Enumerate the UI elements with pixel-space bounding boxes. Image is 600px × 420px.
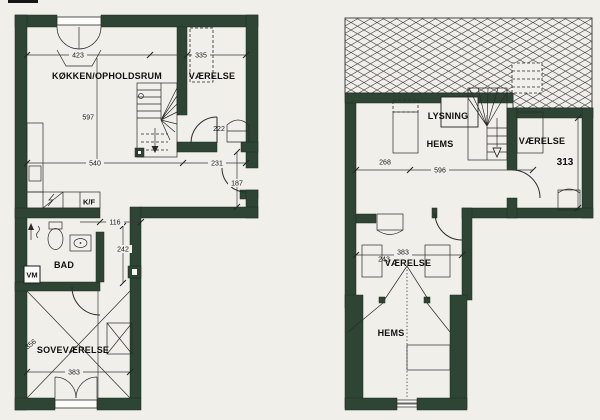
electrical-box <box>135 148 144 157</box>
staircase-ground <box>137 83 177 157</box>
room-label-lysning: LYSNING <box>428 111 469 121</box>
upper-hems-bed <box>393 100 418 153</box>
room-label-room-lower: VÆRELSE <box>385 258 431 268</box>
room-label-bedroom: SOVEVÆRELSE <box>37 345 109 355</box>
dim-596: 596 <box>434 168 446 175</box>
dim-242: 242 <box>117 247 129 254</box>
stair-down-arrow <box>152 146 159 153</box>
washer-label: VM <box>26 271 37 280</box>
french-door-bottom <box>55 377 97 408</box>
room-label-room1: VÆRELSE <box>189 71 235 81</box>
dim-116: 116 <box>109 220 120 227</box>
door-room313 <box>512 170 540 198</box>
dim-540: 540 <box>89 161 101 168</box>
bath-sink <box>70 235 91 251</box>
wall-outlet-box <box>132 269 137 275</box>
room-label-hems-upper: HEMS <box>427 139 454 149</box>
dim-313: 313 <box>557 157 574 168</box>
stair-above-dashed <box>512 63 542 93</box>
bedroom-furniture <box>107 323 132 354</box>
scan-artifact <box>8 0 38 3</box>
stove-symbol <box>48 194 54 206</box>
lower-hems-bed <box>407 345 450 370</box>
dim-268: 268 <box>379 160 391 167</box>
armchair <box>227 120 249 142</box>
upper-floor-plan: 268 596 313 383 243 LYSNING HEMS VÆRELSE… <box>345 18 593 410</box>
toilet <box>48 222 63 250</box>
dim-383-ground: 383 <box>68 370 80 377</box>
dim-383-upper: 383 <box>397 250 409 257</box>
room-label-room313: VÆRELSE <box>519 136 565 146</box>
room313-chest <box>558 189 580 210</box>
room-label-hems-lower: HEMS <box>378 328 405 338</box>
floor-plan-page: VM <box>0 0 600 420</box>
stair-down-arrow-upper <box>493 148 501 157</box>
hems-post-left <box>379 297 385 303</box>
door-upper-room <box>435 213 462 240</box>
hems-window <box>397 400 417 407</box>
washing-machine: VM <box>24 266 40 283</box>
shower-symbol <box>28 223 40 240</box>
room-label-kitchen: KØKKEN/OPHOLDSRUM <box>52 71 162 81</box>
dim-423: 423 <box>72 53 84 60</box>
fridge-label: K/F <box>83 198 96 207</box>
room-label-bath: BAD <box>54 260 74 270</box>
dim-187: 187 <box>231 181 243 188</box>
dim-335: 335 <box>195 53 207 60</box>
ground-floor-plan: VM <box>15 15 258 410</box>
dim-597: 597 <box>82 115 94 122</box>
lower-room-table <box>377 214 403 235</box>
kitchen-sink <box>29 166 41 181</box>
dim-231: 231 <box>211 161 223 168</box>
floor-plan-canvas: VM <box>0 0 600 420</box>
dim-222: 222 <box>213 126 225 133</box>
